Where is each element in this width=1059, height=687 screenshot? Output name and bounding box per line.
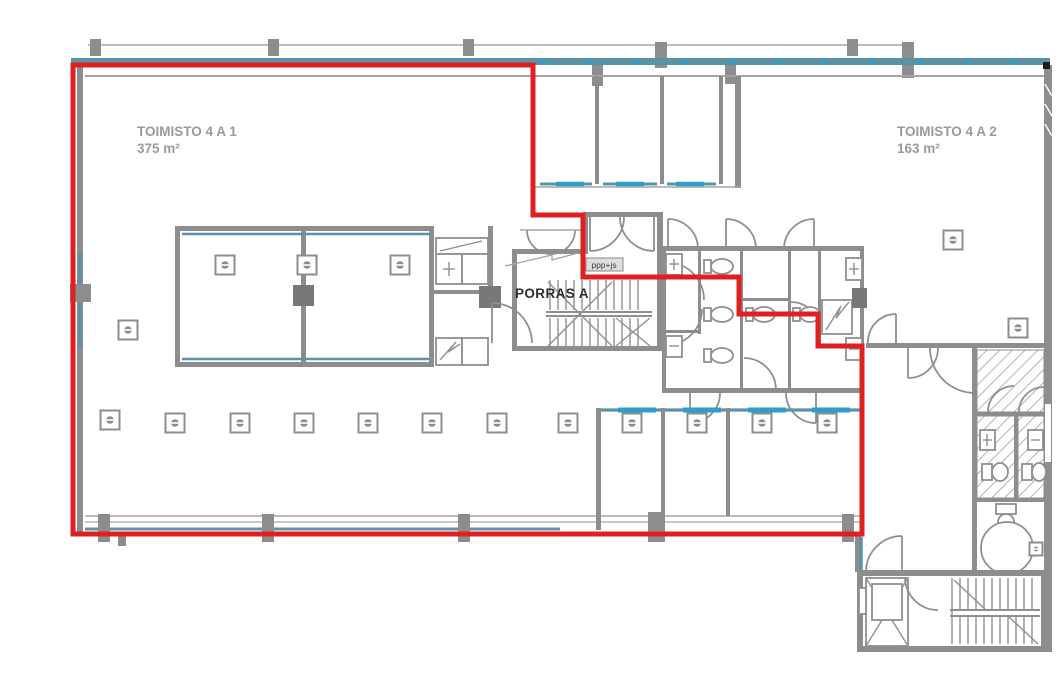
top-rooms [533,76,741,188]
floor-plan: ppp+js PORRAS A [0,0,1059,687]
floor-plan-svg: ppp+js PORRAS A [0,0,1059,687]
office2-area: 163 m² [897,141,940,156]
office1-name: TOIMISTO 4 A 1 [137,124,237,139]
ceiling-symbol [391,256,410,275]
wc-block [662,219,867,423]
lobby-doors [590,217,654,251]
ceiling-symbol [101,411,120,430]
ceiling-symbol [216,256,235,275]
ceiling-symbol [1030,543,1043,556]
corner-marker [1043,62,1050,69]
stairwell-label: PORRAS A [515,286,589,301]
round-table [981,522,1033,574]
ceiling-symbol [298,256,317,275]
ceiling-symbol [119,321,138,340]
right-wall-niche [1045,404,1051,462]
wc-stall-left [977,416,1015,498]
column [293,285,314,306]
riser-note-label: ppp+js [591,260,616,270]
ceiling-symbol [166,414,185,433]
column [479,286,501,308]
ceiling-symbol [359,414,378,433]
ceiling-symbol [688,414,707,433]
wc-stall-right [1018,416,1044,498]
right-wall [1044,65,1052,652]
stair-block [857,570,1047,652]
ceiling-symbol [295,414,314,433]
ceiling-symbol [623,414,642,433]
elevator [859,578,908,646]
ceiling-symbol [818,414,837,433]
office2-name: TOIMISTO 4 A 2 [897,124,997,139]
ceiling-symbol [944,231,963,250]
ceiling-symbols [101,231,1043,556]
corridor-doors [668,219,814,249]
column [852,288,867,308]
meeting-rooms [175,226,432,367]
labels: TOIMISTO 4 A 1 375 m² TOIMISTO 4 A 2 163… [137,124,997,156]
lower-right-room [866,504,1033,574]
door-arc [905,577,938,610]
ceiling-symbol [559,414,578,433]
ceiling-symbol [1009,319,1028,338]
ceiling-symbol [423,414,442,433]
office1-area: 375 m² [137,141,180,156]
stair-treads [950,578,1040,644]
door-arc [868,314,896,343]
ceiling-symbol [231,414,250,433]
ceiling-symbol [753,414,772,433]
ceiling-symbol [488,414,507,433]
right-wing [866,314,1050,575]
wc-room-hatched [977,350,1044,412]
